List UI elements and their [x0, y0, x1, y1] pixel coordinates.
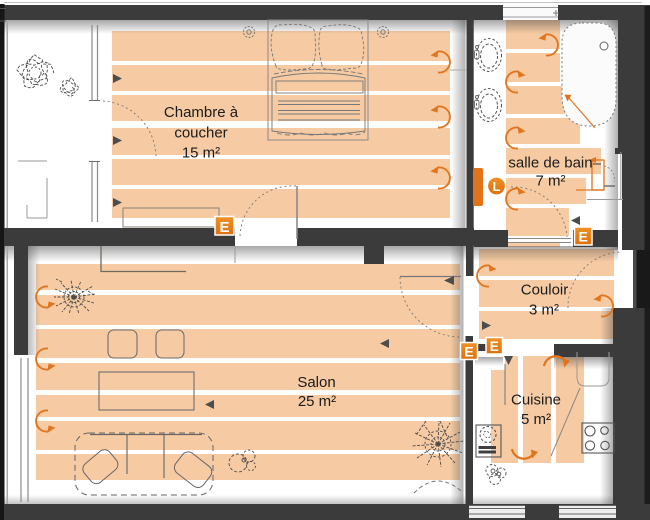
- svg-text:15 m²: 15 m²: [182, 145, 220, 162]
- svg-text:Chambre à: Chambre à: [164, 104, 239, 121]
- svg-text:E: E: [464, 344, 473, 360]
- svg-text:3 m²: 3 m²: [529, 302, 559, 319]
- svg-text:E: E: [490, 339, 499, 354]
- svg-text:Salon: Salon: [297, 374, 335, 391]
- svg-text:coucher: coucher: [174, 125, 227, 142]
- svg-text:5 m²: 5 m²: [521, 411, 551, 428]
- svg-text:Couloir: Couloir: [521, 282, 569, 299]
- svg-text:E: E: [579, 229, 588, 245]
- svg-text:salle de bain: salle de bain: [508, 155, 592, 172]
- svg-text:E: E: [219, 219, 229, 236]
- svg-text:7 m²: 7 m²: [536, 173, 566, 190]
- svg-text:L: L: [493, 180, 501, 194]
- svg-text:25 m²: 25 m²: [298, 393, 336, 410]
- svg-text:Cuisine: Cuisine: [511, 392, 561, 409]
